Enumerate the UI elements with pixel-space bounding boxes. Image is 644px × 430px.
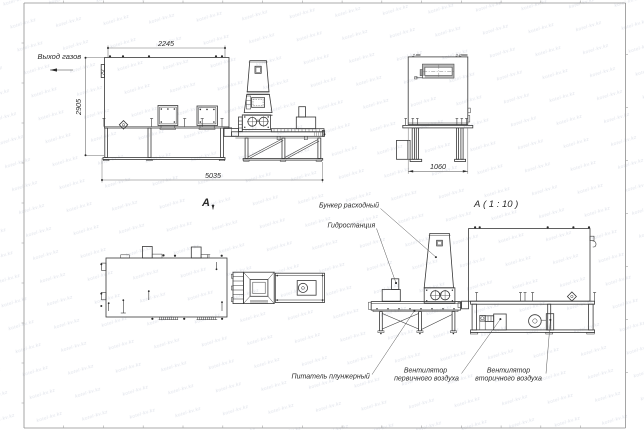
- svg-text:3-Ø: 3-Ø: [456, 54, 463, 58]
- svg-text:2-: 2-: [412, 54, 417, 58]
- svg-text:2905: 2905: [74, 98, 83, 116]
- svg-text:А ( 1 : 10 ): А ( 1 : 10 ): [473, 199, 518, 210]
- svg-text:5035: 5035: [205, 171, 222, 180]
- svg-text:Бункер расходный: Бункер расходный: [319, 201, 379, 209]
- svg-text:Гидростанция: Гидростанция: [328, 221, 376, 229]
- svg-text:2245: 2245: [157, 39, 175, 48]
- svg-text:вторичного воздуха: вторичного воздуха: [475, 375, 542, 383]
- svg-text:первичного воздуха: первичного воздуха: [394, 375, 459, 383]
- svg-text:1060: 1060: [430, 162, 446, 171]
- svg-text:А: А: [201, 197, 210, 209]
- svg-text:Вентилятор: Вентилятор: [404, 368, 447, 375]
- svg-text:Вентилятор: Вентилятор: [487, 368, 530, 375]
- svg-text:Выход газов: Выход газов: [38, 52, 82, 61]
- svg-text:Питатель плунжерный: Питатель плунжерный: [292, 372, 370, 380]
